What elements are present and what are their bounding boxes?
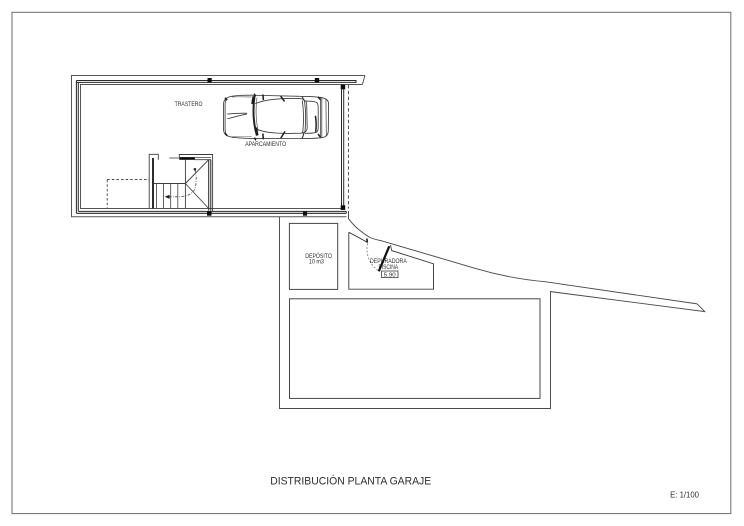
svg-text:APARCAMIENTO: APARCAMIENTO [245, 141, 286, 148]
svg-text:5.90: 5.90 [384, 273, 396, 279]
svg-text:TRASTERO: TRASTERO [175, 101, 203, 108]
svg-text:E: 1/100: E: 1/100 [670, 490, 699, 499]
svg-text:DISTRIBUCIÓN PLANTA GARAJE: DISTRIBUCIÓN PLANTA GARAJE [270, 474, 431, 487]
svg-text:10 m3: 10 m3 [309, 260, 325, 266]
